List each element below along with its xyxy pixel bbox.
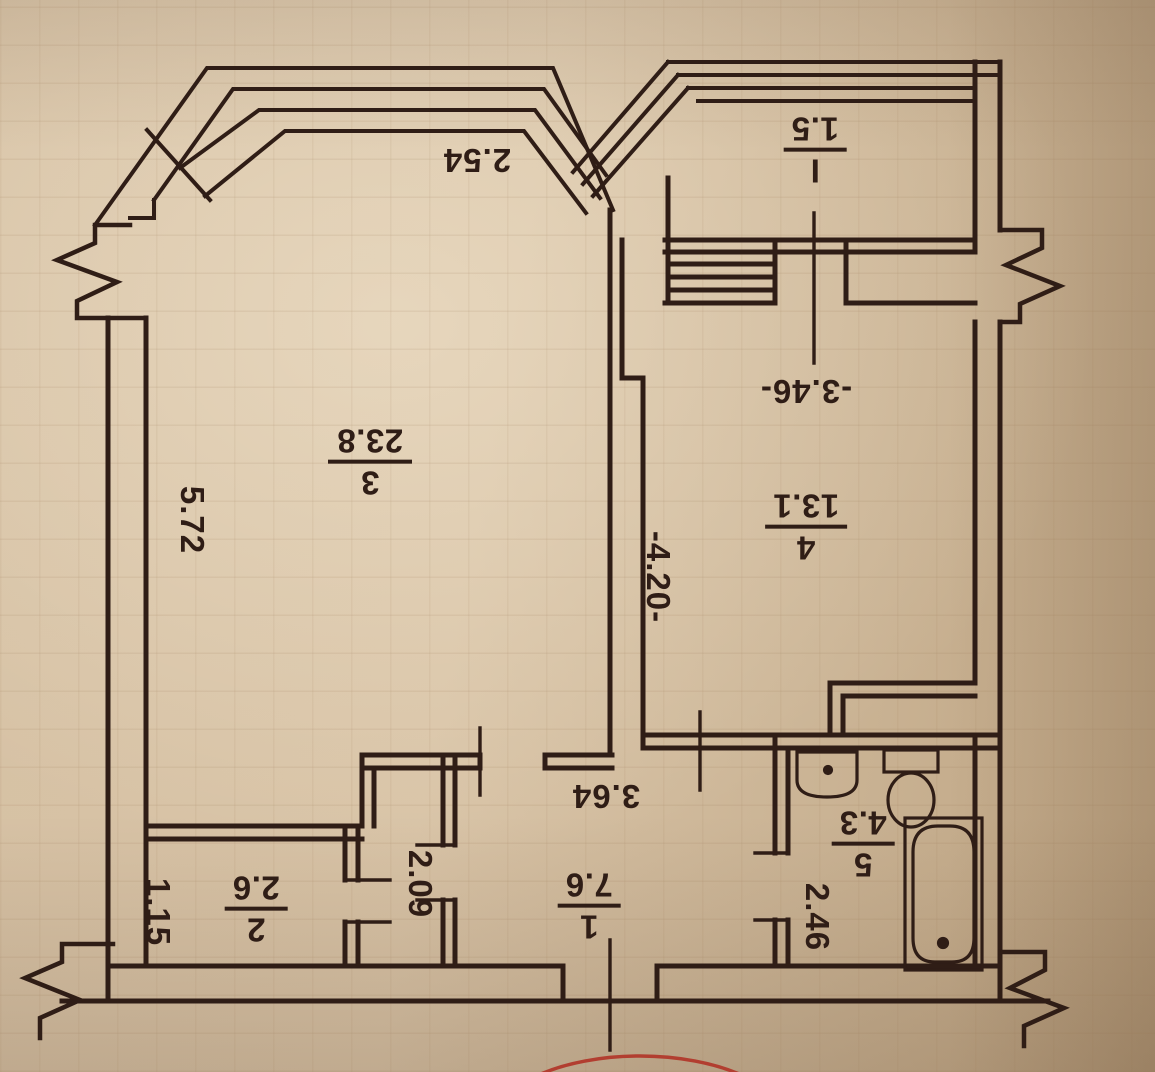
wall-room4-bottom xyxy=(643,735,1000,748)
wall-bathroom-left xyxy=(775,735,788,966)
room-label-5: 5 4.3 xyxy=(831,806,894,881)
room-number: I xyxy=(783,148,846,188)
bay-line-3 xyxy=(180,110,600,198)
sink-icon xyxy=(797,752,857,797)
dim-bay-width: 2.54 xyxy=(443,141,511,179)
room-number: 5 xyxy=(831,842,894,882)
room-label-3: 3 23.8 xyxy=(328,424,412,499)
room-label-2: 2 2.6 xyxy=(224,871,287,946)
balcony-glazing-lines xyxy=(668,62,1000,101)
tick-bathroom-door xyxy=(755,853,788,920)
dim-room4-depth: -4.20- xyxy=(639,531,677,623)
wall-shaft xyxy=(830,683,975,735)
wall-divider-room3-room4 xyxy=(610,210,643,755)
break-top-right xyxy=(1000,230,1060,322)
wall-room1-left xyxy=(443,755,455,966)
window-sill-lines xyxy=(668,264,775,290)
room-area: 1.5 xyxy=(783,112,846,148)
room-label-4: 4 13.1 xyxy=(765,489,847,564)
bathtub-icon xyxy=(905,818,982,970)
sink-drain xyxy=(825,767,832,774)
room-number: 1 xyxy=(557,904,620,944)
room-number: 3 xyxy=(328,460,412,500)
toilet-tank xyxy=(884,750,938,772)
room-label-balcony: I 1.5 xyxy=(783,112,846,187)
tick-room2-door xyxy=(345,880,390,922)
dim-bathroom-depth: 2.46 xyxy=(798,883,836,951)
wall-room4-top-band xyxy=(665,240,975,252)
wall-room2-right xyxy=(345,826,358,966)
dim-room2-width: 1.15 xyxy=(139,878,177,946)
room-area: 13.1 xyxy=(765,489,847,525)
bay-window-band xyxy=(95,68,613,225)
bay-left-jamb-cut xyxy=(147,130,210,200)
break-symbols xyxy=(25,225,1064,1046)
room-number: 4 xyxy=(765,525,847,565)
wall-bottom xyxy=(62,966,1048,1001)
room-label-1: 1 7.6 xyxy=(557,868,620,943)
red-annotation-ellipse xyxy=(490,1056,790,1072)
room-area: 2.6 xyxy=(224,871,287,907)
dim-room1-width: 3.64 xyxy=(572,777,640,815)
room-number: 2 xyxy=(224,907,287,947)
bathtub-drain xyxy=(939,939,948,948)
dim-room4-width: -3.46- xyxy=(760,372,852,410)
room-area: 4.3 xyxy=(831,806,894,842)
floor-plan-photo: 3 23.8 4 13.1 1 7.6 2 2.6 5 4.3 I 1.5 2.… xyxy=(0,0,1155,1072)
balcony-diagonal-2 xyxy=(583,75,678,184)
balcony-diagonal-3 xyxy=(593,88,688,196)
wall-room3-room1 xyxy=(362,755,612,768)
dim-room3-depth: 5.72 xyxy=(173,486,211,554)
bay-left-tail xyxy=(130,200,154,218)
room-area: 23.8 xyxy=(328,424,412,460)
room-area: 7.6 xyxy=(557,868,620,904)
bay-line-inner xyxy=(205,131,586,213)
wall-room2-top xyxy=(146,826,362,839)
break-top-left xyxy=(57,225,146,318)
balcony-diagonal-1 xyxy=(573,62,668,172)
dim-closet-width: 2.09 xyxy=(401,850,439,918)
break-bottom-left xyxy=(25,944,113,1038)
